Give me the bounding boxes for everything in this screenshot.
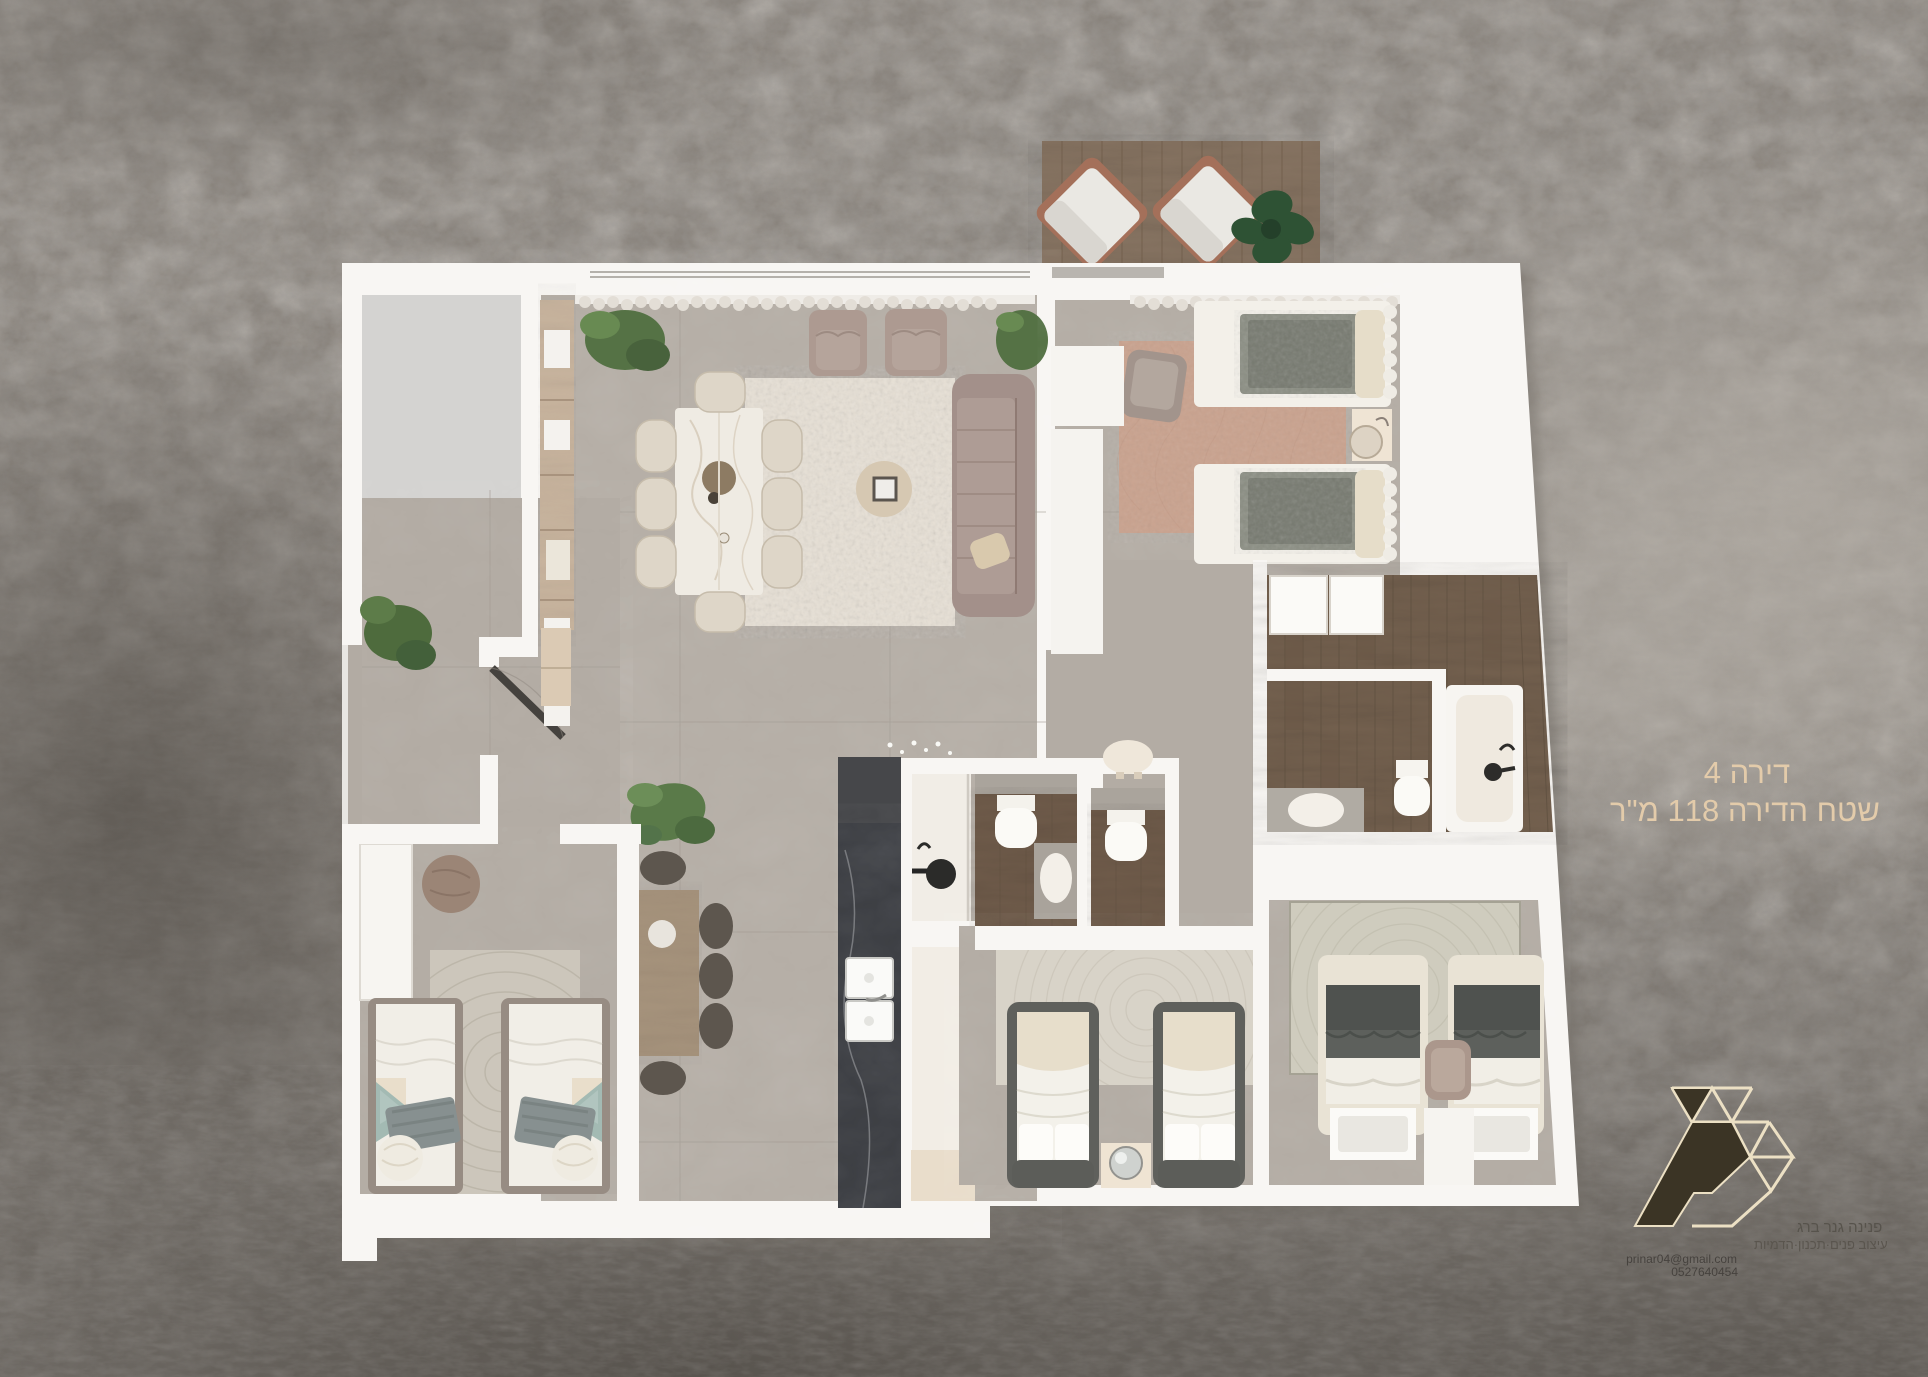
svg-text:פנינה גנר ברג: פנינה גנר ברג [1797, 1219, 1882, 1236]
svg-text:prinar04@gmail.com: prinar04@gmail.com [1626, 1252, 1737, 1266]
svg-text:0527640454: 0527640454 [1671, 1265, 1738, 1279]
svg-text:דירה 4: דירה 4 [1704, 755, 1790, 790]
svg-text:שטח הדירה 118 מ"ר: שטח הדירה 118 מ"ר [1610, 793, 1880, 828]
svg-text:עיצוב פנים·תכנון·הדמיות: עיצוב פנים·תכנון·הדמיות [1754, 1237, 1888, 1252]
